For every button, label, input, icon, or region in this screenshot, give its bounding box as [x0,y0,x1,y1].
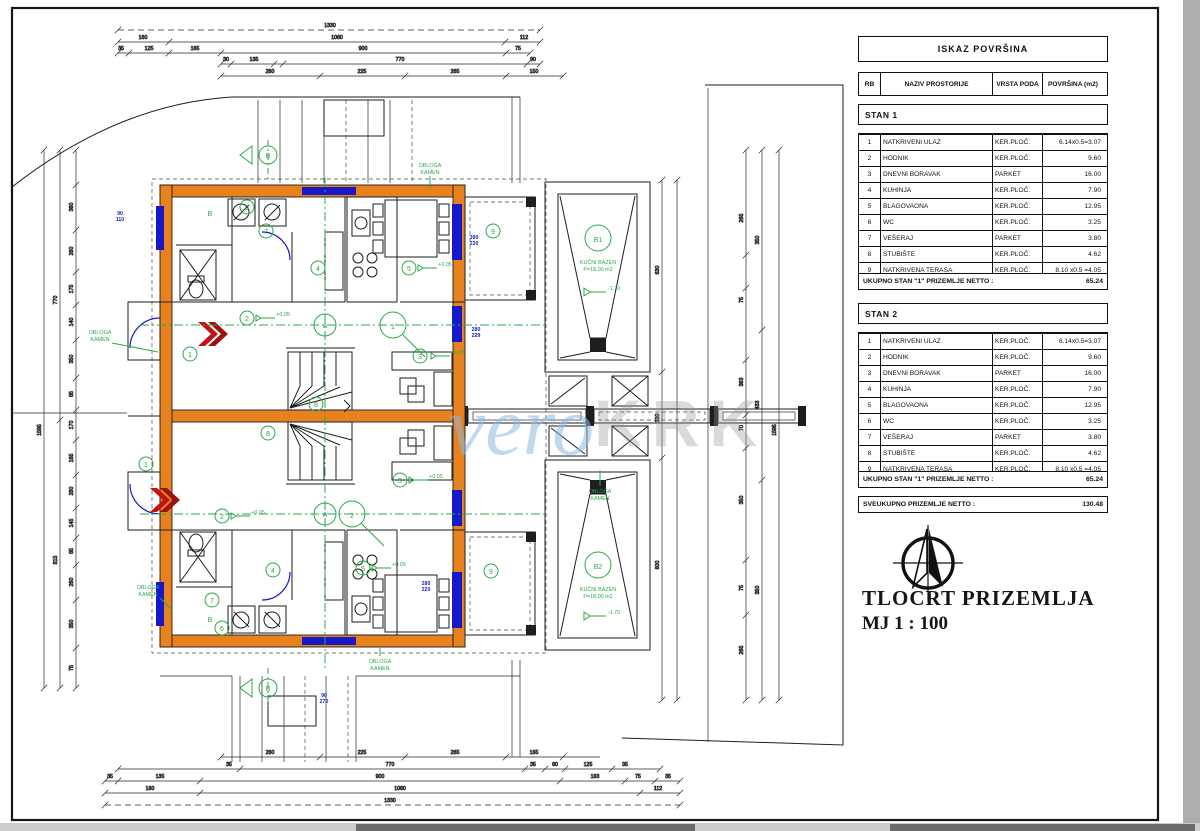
svg-text:112: 112 [654,786,662,792]
stan2-label: STAN 2 [858,303,1108,324]
svg-text:9: 9 [491,229,495,236]
svg-text:1330: 1330 [384,798,396,804]
col-naziv: NAZIV PROSTORIJE [881,73,993,95]
svg-text:1: 1 [144,462,148,469]
svg-text:815: 815 [53,556,59,565]
svg-text:900: 900 [376,774,385,780]
svg-text:1060: 1060 [331,35,343,41]
svg-text:160: 160 [146,786,155,792]
svg-text:-1.70: -1.70 [608,610,620,616]
svg-text:OBLOGA: OBLOGA [89,330,112,336]
svg-text:4: 4 [271,568,275,575]
svg-text:350: 350 [755,586,761,595]
svg-text:175: 175 [69,285,75,294]
svg-text:630: 630 [655,266,661,275]
svg-text:B: B [266,686,271,693]
svg-text:35: 35 [118,46,124,52]
svg-text:KUĆNI BAZEN: KUĆNI BAZEN [580,586,616,593]
svg-text:135: 135 [250,57,259,63]
svg-text:KAMEN: KAMEN [590,496,609,502]
svg-text:433: 433 [755,401,761,410]
svg-text:225: 225 [358,750,367,756]
svg-text:75: 75 [739,297,745,303]
svg-text:+0.05: +0.05 [429,474,443,480]
svg-text:1: 1 [391,324,395,331]
svg-text:5: 5 [407,266,411,273]
svg-text:B: B [266,153,271,160]
svg-text:35: 35 [107,774,113,780]
svg-text:125: 125 [584,762,593,768]
svg-text:280: 280 [69,487,75,496]
scan-edge-right [1183,0,1200,831]
svg-text:75: 75 [69,665,75,671]
svg-text:5: 5 [361,566,365,573]
svg-text:+0.05: +0.05 [438,262,452,268]
svg-text:8: 8 [266,431,270,438]
svg-text:B1: B1 [594,237,603,244]
svg-text:350: 350 [739,496,745,505]
svg-text:P=18.00 m2: P=18.00 m2 [583,594,612,600]
svg-text:KUĆNI BAZEN: KUĆNI BAZEN [580,259,616,266]
svg-text:165: 165 [530,750,539,756]
svg-text:6: 6 [245,205,249,212]
svg-text:60: 60 [552,762,558,768]
svg-text:265: 265 [451,69,460,75]
svg-text:265: 265 [739,214,745,223]
table-row: 2 HODNIK KER.PLOČ. 9.60 [859,150,1107,166]
svg-text:363: 363 [739,378,745,387]
svg-text:220: 220 [422,587,431,593]
svg-text:3: 3 [418,354,422,361]
svg-text:B: B [208,211,213,218]
stan2-total: UKUPNO STAN "1" PRIZEMLJE NETTO :65.24 [858,471,1108,488]
svg-text:35: 35 [622,762,628,768]
table-row: 4 KUHINJA KER.PLOČ. 7.90 [859,182,1107,198]
svg-text:7: 7 [264,229,268,236]
table-column-header: RB NAZIV PROSTORIJE VRSTA PODA POVRŠINA … [858,72,1108,96]
svg-text:75: 75 [739,585,745,591]
svg-text:163: 163 [591,774,600,780]
svg-text:30: 30 [223,57,229,63]
scan-edge-dark-1 [356,824,695,831]
table-title: ISKAZ POVRŠINA [858,36,1108,62]
svg-text:770: 770 [396,57,405,63]
svg-text:229: 229 [472,333,481,339]
drawing-title: TLOCRT PRIZEMLJA [862,586,1095,611]
stan1-total: UKUPNO STAN "1" PRIZEMLJE NETTO :65.24 [858,273,1108,290]
svg-text:4: 4 [316,266,320,273]
svg-text:900: 900 [359,46,368,52]
svg-text:75: 75 [515,46,521,52]
svg-text:230: 230 [470,241,479,247]
svg-text:1330: 1330 [324,23,336,29]
svg-text:1595: 1595 [37,424,43,436]
svg-text:270: 270 [320,699,329,705]
table-row: 7 VEŠERAJ PARKET 3.80 [859,429,1107,445]
svg-text:265: 265 [451,750,460,756]
svg-text:260: 260 [266,750,275,756]
svg-text:70: 70 [739,425,745,431]
drawing-sheet: A A 1 2 B B B1 KUĆNI BAZENP=18.00 m2 -1.… [0,0,1200,831]
svg-text:770: 770 [386,762,395,768]
svg-text:350: 350 [755,236,761,245]
svg-text:1595: 1595 [772,424,778,436]
svg-text:+0.05: +0.05 [392,562,406,568]
svg-text:OBLOGA: OBLOGA [419,163,442,169]
svg-text:35: 35 [530,762,536,768]
svg-text:B2: B2 [594,564,603,571]
table-row: 2 HODNIK KER.PLOČ. 9.60 [859,349,1107,365]
table-row: 3 DNEVNI BORAVAK PARKET 16.00 [859,166,1107,182]
svg-text:360: 360 [69,203,75,212]
svg-text:150: 150 [530,69,539,75]
table-row: 6 WC KER.PLOČ. 3.25 [859,214,1107,230]
svg-text:OBLOGA: OBLOGA [589,489,612,495]
table-row: 1 NATKRIVENI ULAZ KER.PLOČ. 6.14x0.5=3.0… [859,134,1107,150]
svg-text:125: 125 [145,46,154,52]
table-row: 5 BLAGOVAONA KER.PLOČ. 12.95 [859,198,1107,214]
svg-text:-1.70: -1.70 [608,286,620,292]
svg-text:2: 2 [220,514,224,521]
svg-text:OBLOGA: OBLOGA [137,585,160,591]
svg-text:260: 260 [266,69,275,75]
svg-text:A: A [323,323,328,330]
svg-text:165: 165 [191,46,200,52]
svg-text:3: 3 [398,478,402,485]
svg-text:1: 1 [188,352,192,359]
stan2-table: 1 NATKRIVENI ULAZ KER.PLOČ. 6.14x0.5=3.0… [858,332,1108,478]
svg-text:2: 2 [245,316,249,323]
svg-text:2: 2 [350,513,354,520]
stan1-label: STAN 1 [858,104,1108,125]
svg-text:75: 75 [635,774,641,780]
table-row: 4 KUHINJA KER.PLOČ. 7.90 [859,381,1107,397]
svg-text:KAMEN: KAMEN [370,666,389,672]
svg-text:7: 7 [210,598,214,605]
table-row: 8 STUBIŠTE KER.PLOČ. 4.62 [859,445,1107,461]
svg-text:260: 260 [69,578,75,587]
table-row: 5 BLAGOVAONA KER.PLOČ. 12.95 [859,397,1107,413]
col-rb: RB [859,73,881,95]
drawing-scale: MJ 1 : 100 [862,613,1095,635]
svg-text:9: 9 [489,569,493,576]
table-row: 6 WC KER.PLOČ. 3.25 [859,413,1107,429]
scan-edge-dark-2 [890,824,1195,831]
svg-text:130: 130 [655,414,661,423]
svg-text:225: 225 [358,69,367,75]
col-vrsta: VRSTA PODA [993,73,1043,95]
svg-text:KAMEN: KAMEN [90,337,109,343]
svg-text:1060: 1060 [394,786,406,792]
svg-text:B: B [208,617,213,624]
svg-text:160: 160 [139,35,148,41]
svg-text:140: 140 [69,318,75,327]
svg-text:350: 350 [69,620,75,629]
table-row: 3 DNEVNI BORAVAK PARKET 16.00 [859,365,1107,381]
svg-text:+0.05: +0.05 [276,312,290,318]
svg-text:8: 8 [314,402,318,409]
grand-total: SVEUKUPNO PRIZEMLJE NETTO :130.48 [858,496,1108,513]
svg-text:600: 600 [655,561,661,570]
svg-text:260: 260 [69,247,75,256]
svg-text:+0.05: +0.05 [251,510,265,516]
svg-text:KAMEN: KAMEN [420,170,439,176]
svg-text:110: 110 [116,217,124,223]
svg-text:OBLOGA: OBLOGA [369,659,392,665]
svg-text:35: 35 [226,762,232,768]
svg-text:90: 90 [530,57,536,63]
svg-text:+0.05: +0.05 [451,350,465,356]
svg-text:85: 85 [69,548,75,554]
svg-text:265: 265 [739,646,745,655]
svg-text:112: 112 [520,35,528,41]
table-row: 8 STUBIŠTE KER.PLOČ. 4.62 [859,246,1107,262]
svg-text:165: 165 [69,454,75,463]
svg-text:A: A [323,512,328,519]
stan1-table: 1 NATKRIVENI ULAZ KER.PLOČ. 6.14x0.5=3.0… [858,133,1108,279]
svg-text:35: 35 [665,774,671,780]
svg-text:770: 770 [53,296,59,305]
title-block: TLOCRT PRIZEMLJA MJ 1 : 100 [862,586,1095,635]
svg-text:350: 350 [69,355,75,364]
svg-text:145: 145 [69,519,75,528]
svg-text:85: 85 [69,391,75,397]
svg-text:KAMEN: KAMEN [138,592,157,598]
table-row: 1 NATKRIVENI ULAZ KER.PLOČ. 6.14x0.5=3.0… [859,333,1107,349]
col-povrsina: POVRŠINA (m2) [1043,73,1103,95]
svg-text:6: 6 [220,626,224,633]
svg-text:P=18.00 m2: P=18.00 m2 [583,267,612,273]
svg-text:135: 135 [156,774,165,780]
svg-text:170: 170 [69,421,75,430]
table-row: 7 VEŠERAJ PARKET 3.80 [859,230,1107,246]
